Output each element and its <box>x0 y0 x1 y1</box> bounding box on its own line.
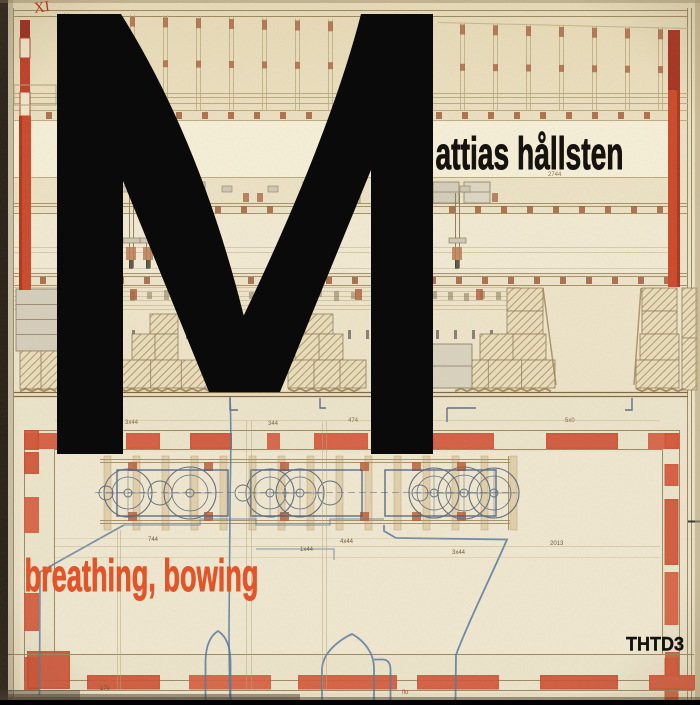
svg-text:attias hållsten: attias hållsten <box>436 128 624 179</box>
svg-text:XI: XI <box>33 0 51 17</box>
svg-text:breathing, bowing: breathing, bowing <box>25 550 259 601</box>
svg-text:THTD3: THTD3 <box>626 634 684 656</box>
